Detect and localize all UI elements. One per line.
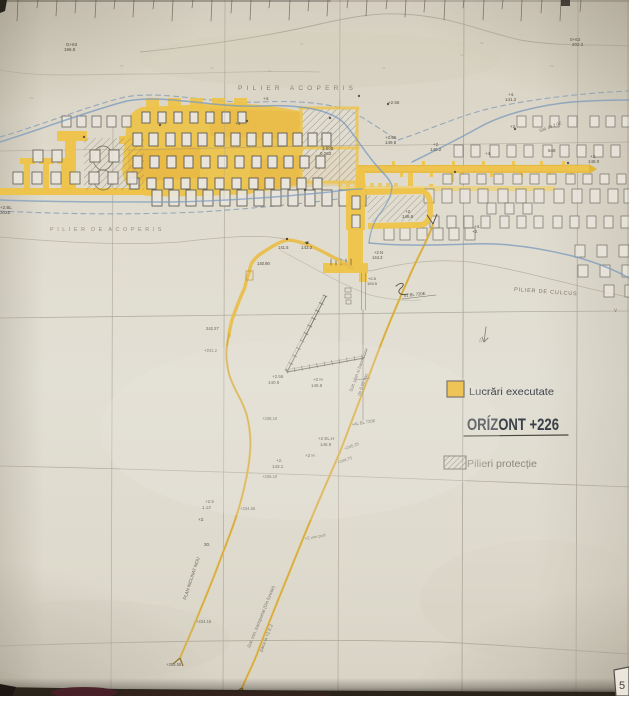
- svg-text:141.2: 141.2: [505, 97, 517, 102]
- svg-text:242.27: 242.27: [206, 326, 219, 331]
- svg-text:~: ~: [550, 64, 554, 70]
- svg-text:5: 5: [619, 680, 625, 692]
- svg-text:+4.: +4.: [263, 96, 269, 101]
- svg-text:+2.: +2.: [472, 229, 478, 234]
- svg-text:~: ~: [480, 41, 484, 47]
- svg-text:144.3: 144.3: [372, 255, 383, 260]
- svg-text:P I L I E R D E A C O P E R: P I L I E R D E A C O P E R I S: [50, 227, 162, 233]
- svg-text:140.90: 140.90: [257, 261, 270, 266]
- svg-text:146.8: 146.8: [402, 214, 414, 219]
- svg-text:~: ~: [120, 64, 124, 70]
- svg-text:+4.: +4.: [235, 121, 241, 126]
- svg-text:0.262: 0.262: [320, 151, 332, 156]
- svg-text:196.8: 196.8: [64, 47, 76, 52]
- svg-text:141.5: 141.5: [278, 245, 289, 250]
- svg-text:+2.56: +2.56: [388, 100, 400, 105]
- svg-text:+2.: +2.: [510, 124, 516, 129]
- svg-text:202.2: 202.2: [572, 42, 584, 47]
- svg-text:+4.: +4.: [485, 151, 491, 156]
- svg-text:548: 548: [548, 148, 556, 153]
- svg-text:v: v: [614, 308, 617, 314]
- svg-text:+2.: +2.: [478, 337, 484, 343]
- svg-text:193.5: 193.5: [367, 281, 378, 286]
- svg-text:+2.: +2.: [198, 517, 204, 522]
- svg-text:143.2: 143.2: [301, 245, 313, 250]
- svg-text:302E: 302E: [0, 210, 11, 215]
- svg-text:140.2: 140.2: [430, 147, 442, 152]
- svg-text:~: ~: [30, 96, 34, 102]
- svg-text:148.0: 148.0: [588, 159, 600, 164]
- svg-text:149.8: 149.8: [385, 140, 397, 145]
- svg-text:30.: 30.: [204, 542, 210, 547]
